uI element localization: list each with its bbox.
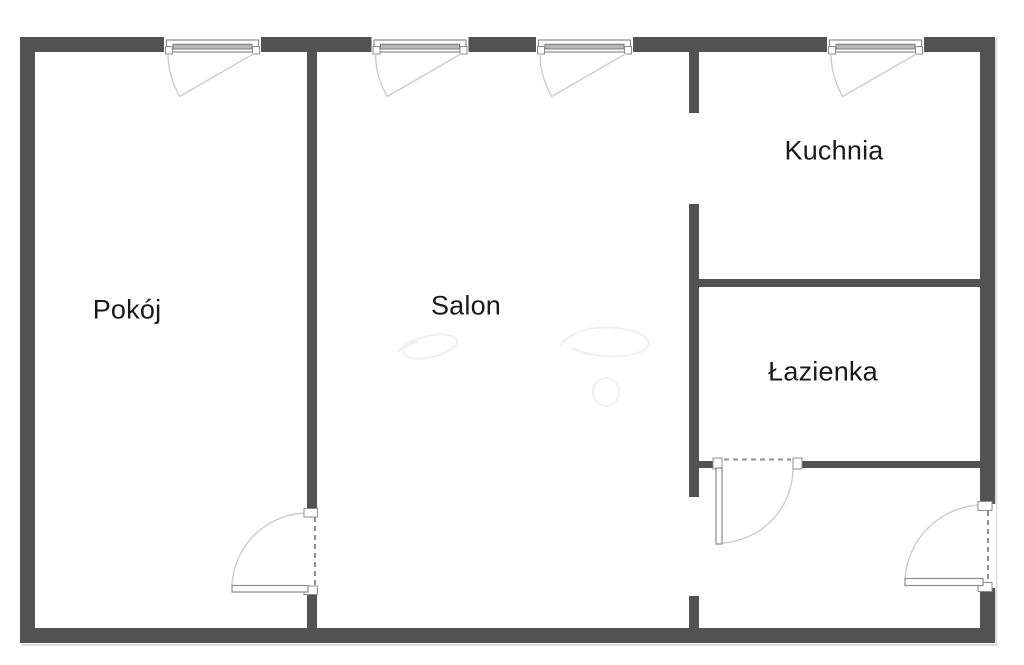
wall-segment: [689, 204, 699, 497]
wall-segment: [801, 461, 980, 468]
wall-segment: [689, 461, 713, 468]
door-jamb: [793, 458, 802, 469]
room-label-pokoj: Pokój: [93, 295, 162, 326]
wall-segment: [307, 595, 317, 628]
room-label-lazienka: Łazienka: [768, 357, 878, 388]
floorplan-canvas: Pokój Salon Kuchnia Łazienka: [0, 0, 1024, 665]
door-swing-arc: [722, 468, 793, 543]
door-jamb: [978, 502, 992, 511]
door-swing-arc: [232, 513, 308, 585]
door-swing-arc: [905, 505, 981, 578]
window-icon-salon-left: [372, 36, 469, 97]
watermark-stroke: [560, 327, 649, 356]
wall-segment: [689, 596, 699, 628]
shadow-line: [21, 38, 996, 645]
wall-segment: [689, 52, 699, 113]
window-icon-pokoj: [164, 36, 261, 97]
outer-shadow: [21, 38, 996, 645]
watermark-stroke: [398, 334, 457, 358]
wall-kuchnia-lazienka: [689, 279, 980, 287]
interior-wall-pokoj-salon: [307, 52, 317, 628]
door-jamb: [713, 458, 722, 469]
door-leaf: [232, 586, 308, 593]
window-icon-salon-right: [536, 36, 633, 97]
door-jamb: [304, 509, 318, 518]
wall-segment: [689, 279, 980, 287]
door-icon-lazienka: [713, 458, 802, 544]
wall-segment: [307, 52, 317, 512]
door-leaf: [905, 579, 983, 586]
interior-wall-salon-kuchnia: [689, 52, 699, 628]
room-label-kuchnia: Kuchnia: [785, 136, 884, 167]
door-icon-entry: [905, 502, 996, 592]
floorplan-drawing: [0, 0, 1024, 665]
outer-wall-ring: [20, 37, 995, 643]
outer-walls: [20, 37, 995, 643]
window-icon-kuchnia: [827, 36, 924, 97]
watermark-circle: [593, 378, 619, 406]
watermark: [398, 327, 649, 406]
wall-lazienka-bottom: [689, 461, 980, 468]
door-icon-pokoj: [232, 509, 318, 595]
room-label-salon: Salon: [431, 291, 501, 322]
door-leaf: [716, 468, 722, 544]
